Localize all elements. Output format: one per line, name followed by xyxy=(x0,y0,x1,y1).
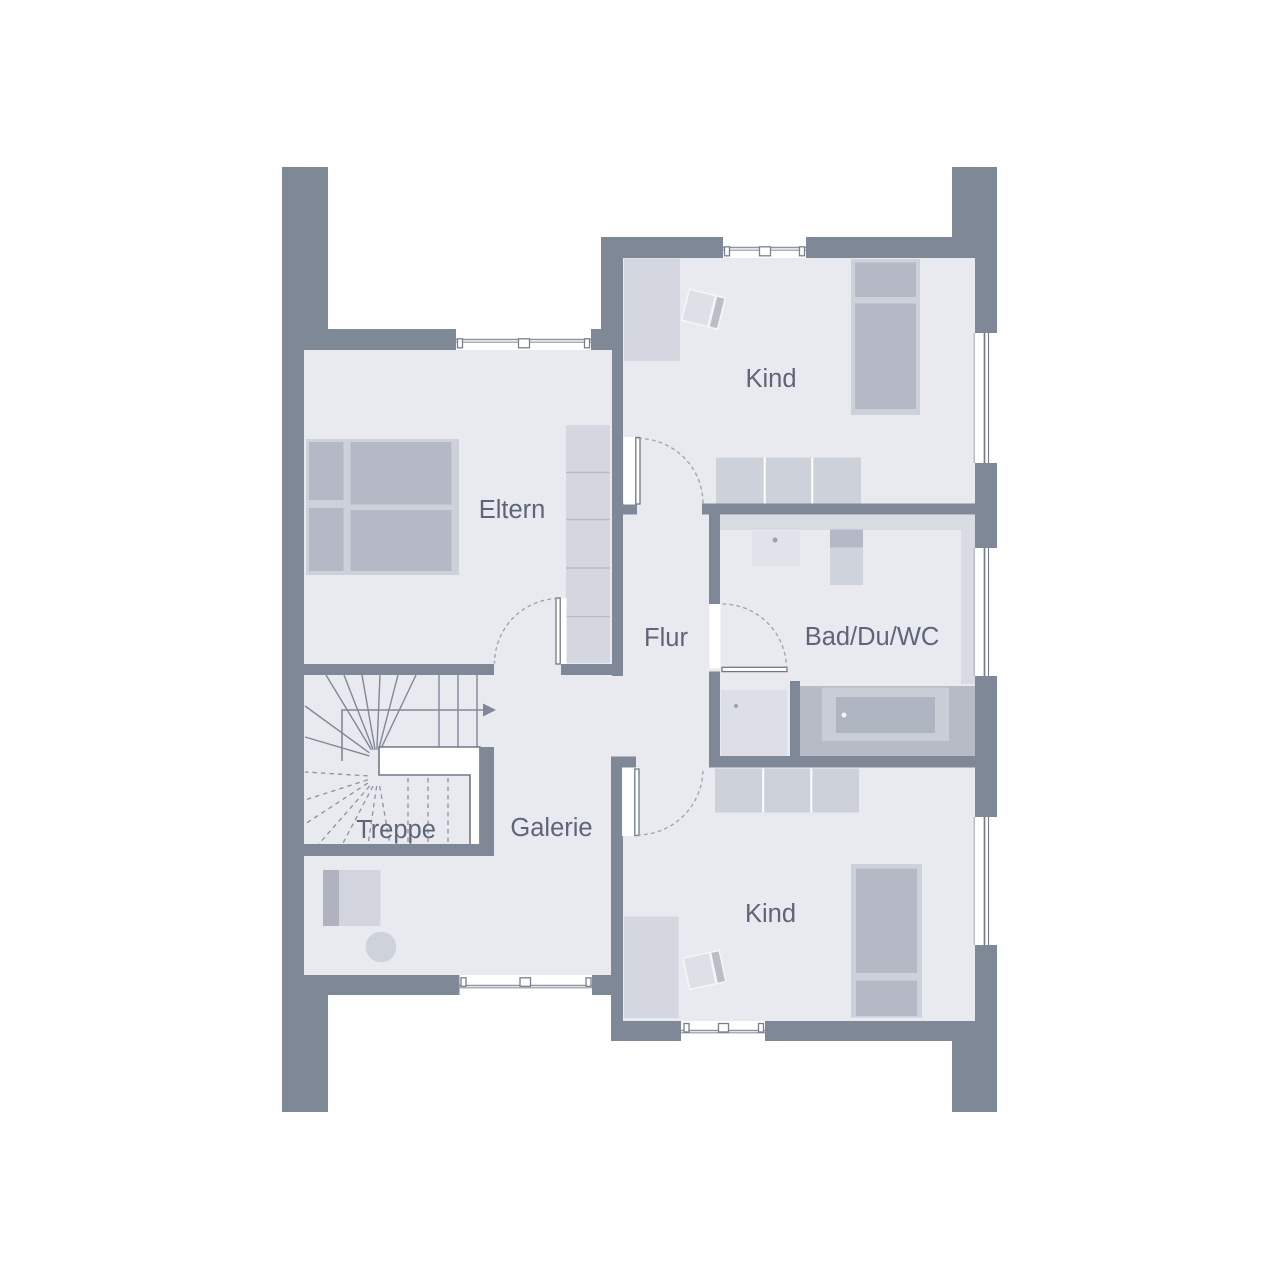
svg-text:Treppe: Treppe xyxy=(356,816,436,844)
svg-text:Galerie: Galerie xyxy=(510,814,592,842)
svg-text:Kind: Kind xyxy=(745,900,796,928)
svg-text:Kind: Kind xyxy=(745,365,796,393)
svg-text:Eltern: Eltern xyxy=(479,496,546,524)
svg-text:Bad/Du/WC: Bad/Du/WC xyxy=(805,623,940,651)
svg-text:Flur: Flur xyxy=(644,624,688,652)
